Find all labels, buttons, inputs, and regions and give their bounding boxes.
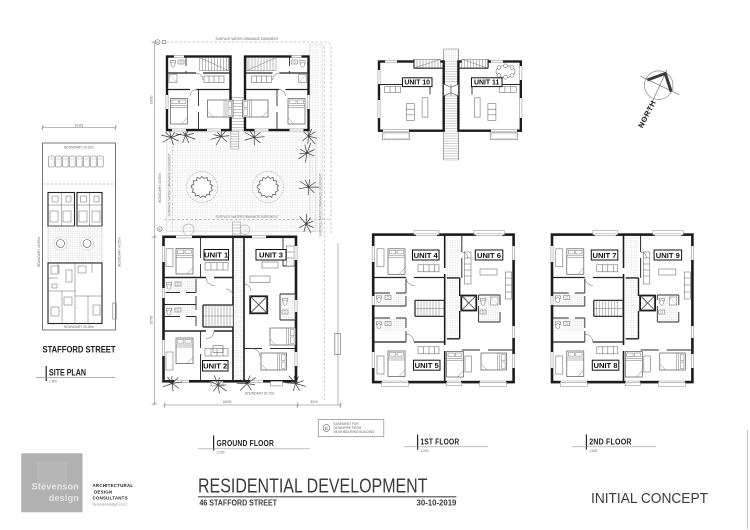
svg-text:UNIT 9: UNIT 9 [656, 251, 680, 260]
svg-text:20115: 20115 [75, 123, 84, 127]
svg-text:RESIDENTIAL DEVELOPMENT: RESIDENTIAL DEVELOPMENT [198, 475, 428, 498]
svg-text:UNIT 3: UNIT 3 [259, 251, 283, 260]
svg-text:SURFACE WATER DRAINAGE EASEMEN: SURFACE WATER DRAINAGE EASEMENT [215, 37, 278, 41]
svg-text:UNIT 2: UNIT 2 [203, 362, 227, 371]
svg-text:design: design [49, 493, 79, 503]
svg-text:BOUNDARY 20.15m: BOUNDARY 20.15m [64, 325, 94, 329]
svg-text:NEIGHBOURING BUILDING: NEIGHBOURING BUILDING [334, 430, 375, 434]
svg-text:UNIT 7: UNIT 7 [592, 251, 616, 260]
svg-text:30-10-2019: 30-10-2019 [417, 498, 458, 507]
svg-text:2ND FLOOR: 2ND FLOOR [589, 437, 632, 446]
svg-text:Stevenson: Stevenson [32, 482, 79, 492]
svg-text:8010: 8010 [310, 400, 317, 404]
svg-text:1:200: 1:200 [420, 449, 428, 453]
svg-text:1:500: 1:500 [49, 379, 57, 383]
svg-text:20700: 20700 [150, 315, 154, 324]
svg-text:UNIT 6: UNIT 6 [477, 251, 501, 260]
svg-text:UNIT 11: UNIT 11 [474, 80, 499, 87]
svg-text:UNIT 1: UNIT 1 [204, 251, 229, 260]
svg-text:CONSULTANTS: CONSULTANTS [93, 496, 128, 501]
svg-text:BOUNDARY 40.35m: BOUNDARY 40.35m [158, 173, 162, 203]
svg-text:INITIAL CONCEPT: INITIAL CONCEPT [591, 491, 708, 507]
svg-text:UNIT 10: UNIT 10 [404, 80, 430, 87]
svg-text:UNIT 4: UNIT 4 [414, 251, 439, 260]
svg-text:DESIGN: DESIGN [94, 489, 112, 494]
svg-text:1:200: 1:200 [589, 449, 597, 453]
svg-text:BOUNDARY 40.35m: BOUNDARY 40.35m [37, 237, 41, 267]
svg-text:ARCHITECTURAL: ARCHITECTURAL [93, 483, 134, 488]
svg-text:stevensondesign.co.nz: stevensondesign.co.nz [93, 503, 128, 507]
svg-text:1:200: 1:200 [217, 450, 225, 454]
svg-text:UNIT 8: UNIT 8 [593, 361, 617, 370]
svg-text:46 STAFFORD STREET: 46 STAFFORD STREET [200, 498, 278, 507]
svg-text:19650: 19650 [150, 95, 154, 104]
svg-text:GROUND FLOOR: GROUND FLOOR [217, 439, 275, 448]
svg-text:STAFFORD STREET: STAFFORD STREET [43, 344, 116, 355]
svg-text:UNIT 5: UNIT 5 [415, 361, 440, 370]
svg-text:1ST FLOOR: 1ST FLOOR [420, 437, 459, 446]
svg-text:BOUNDARY 40.35m: BOUNDARY 40.35m [118, 237, 122, 267]
svg-text:BOUNDARY 20.15m: BOUNDARY 20.15m [64, 146, 94, 150]
svg-text:SITE PLAN: SITE PLAN [49, 367, 86, 377]
svg-text:15000: 15000 [223, 400, 232, 404]
svg-text:BOUNDARY 20.70m: BOUNDARY 20.70m [245, 392, 275, 396]
svg-text:E: E [325, 426, 328, 431]
